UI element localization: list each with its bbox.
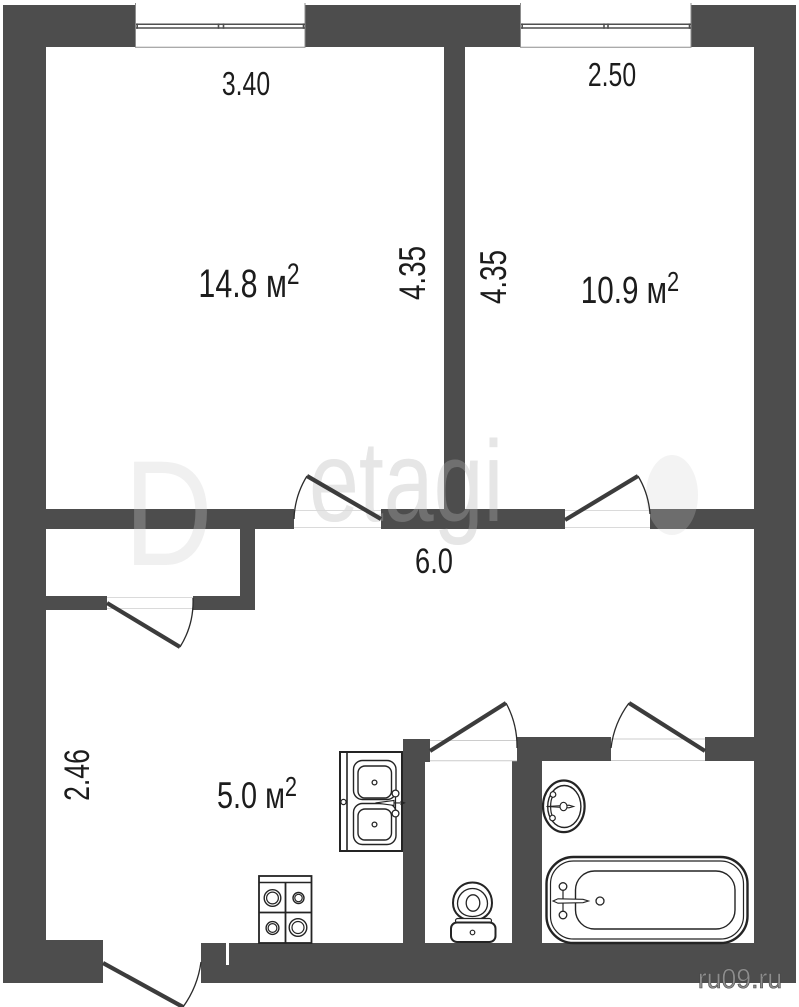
svg-text:6.0: 6.0 bbox=[415, 542, 453, 581]
svg-text:etagi: etagi bbox=[309, 417, 503, 545]
svg-text:ru09.ru: ru09.ru bbox=[698, 962, 782, 994]
svg-text:10.9 м2: 10.9 м2 bbox=[581, 266, 679, 311]
svg-text:3.40: 3.40 bbox=[222, 67, 270, 103]
svg-text:4.35: 4.35 bbox=[472, 250, 514, 304]
svg-text:4.35: 4.35 bbox=[391, 246, 433, 300]
svg-text:5.0 м2: 5.0 м2 bbox=[217, 771, 297, 816]
svg-text:2.50: 2.50 bbox=[588, 58, 636, 94]
svg-text:14.8 м2: 14.8 м2 bbox=[198, 257, 299, 306]
svg-text:D: D bbox=[124, 430, 213, 597]
svg-text:2.46: 2.46 bbox=[57, 749, 97, 801]
